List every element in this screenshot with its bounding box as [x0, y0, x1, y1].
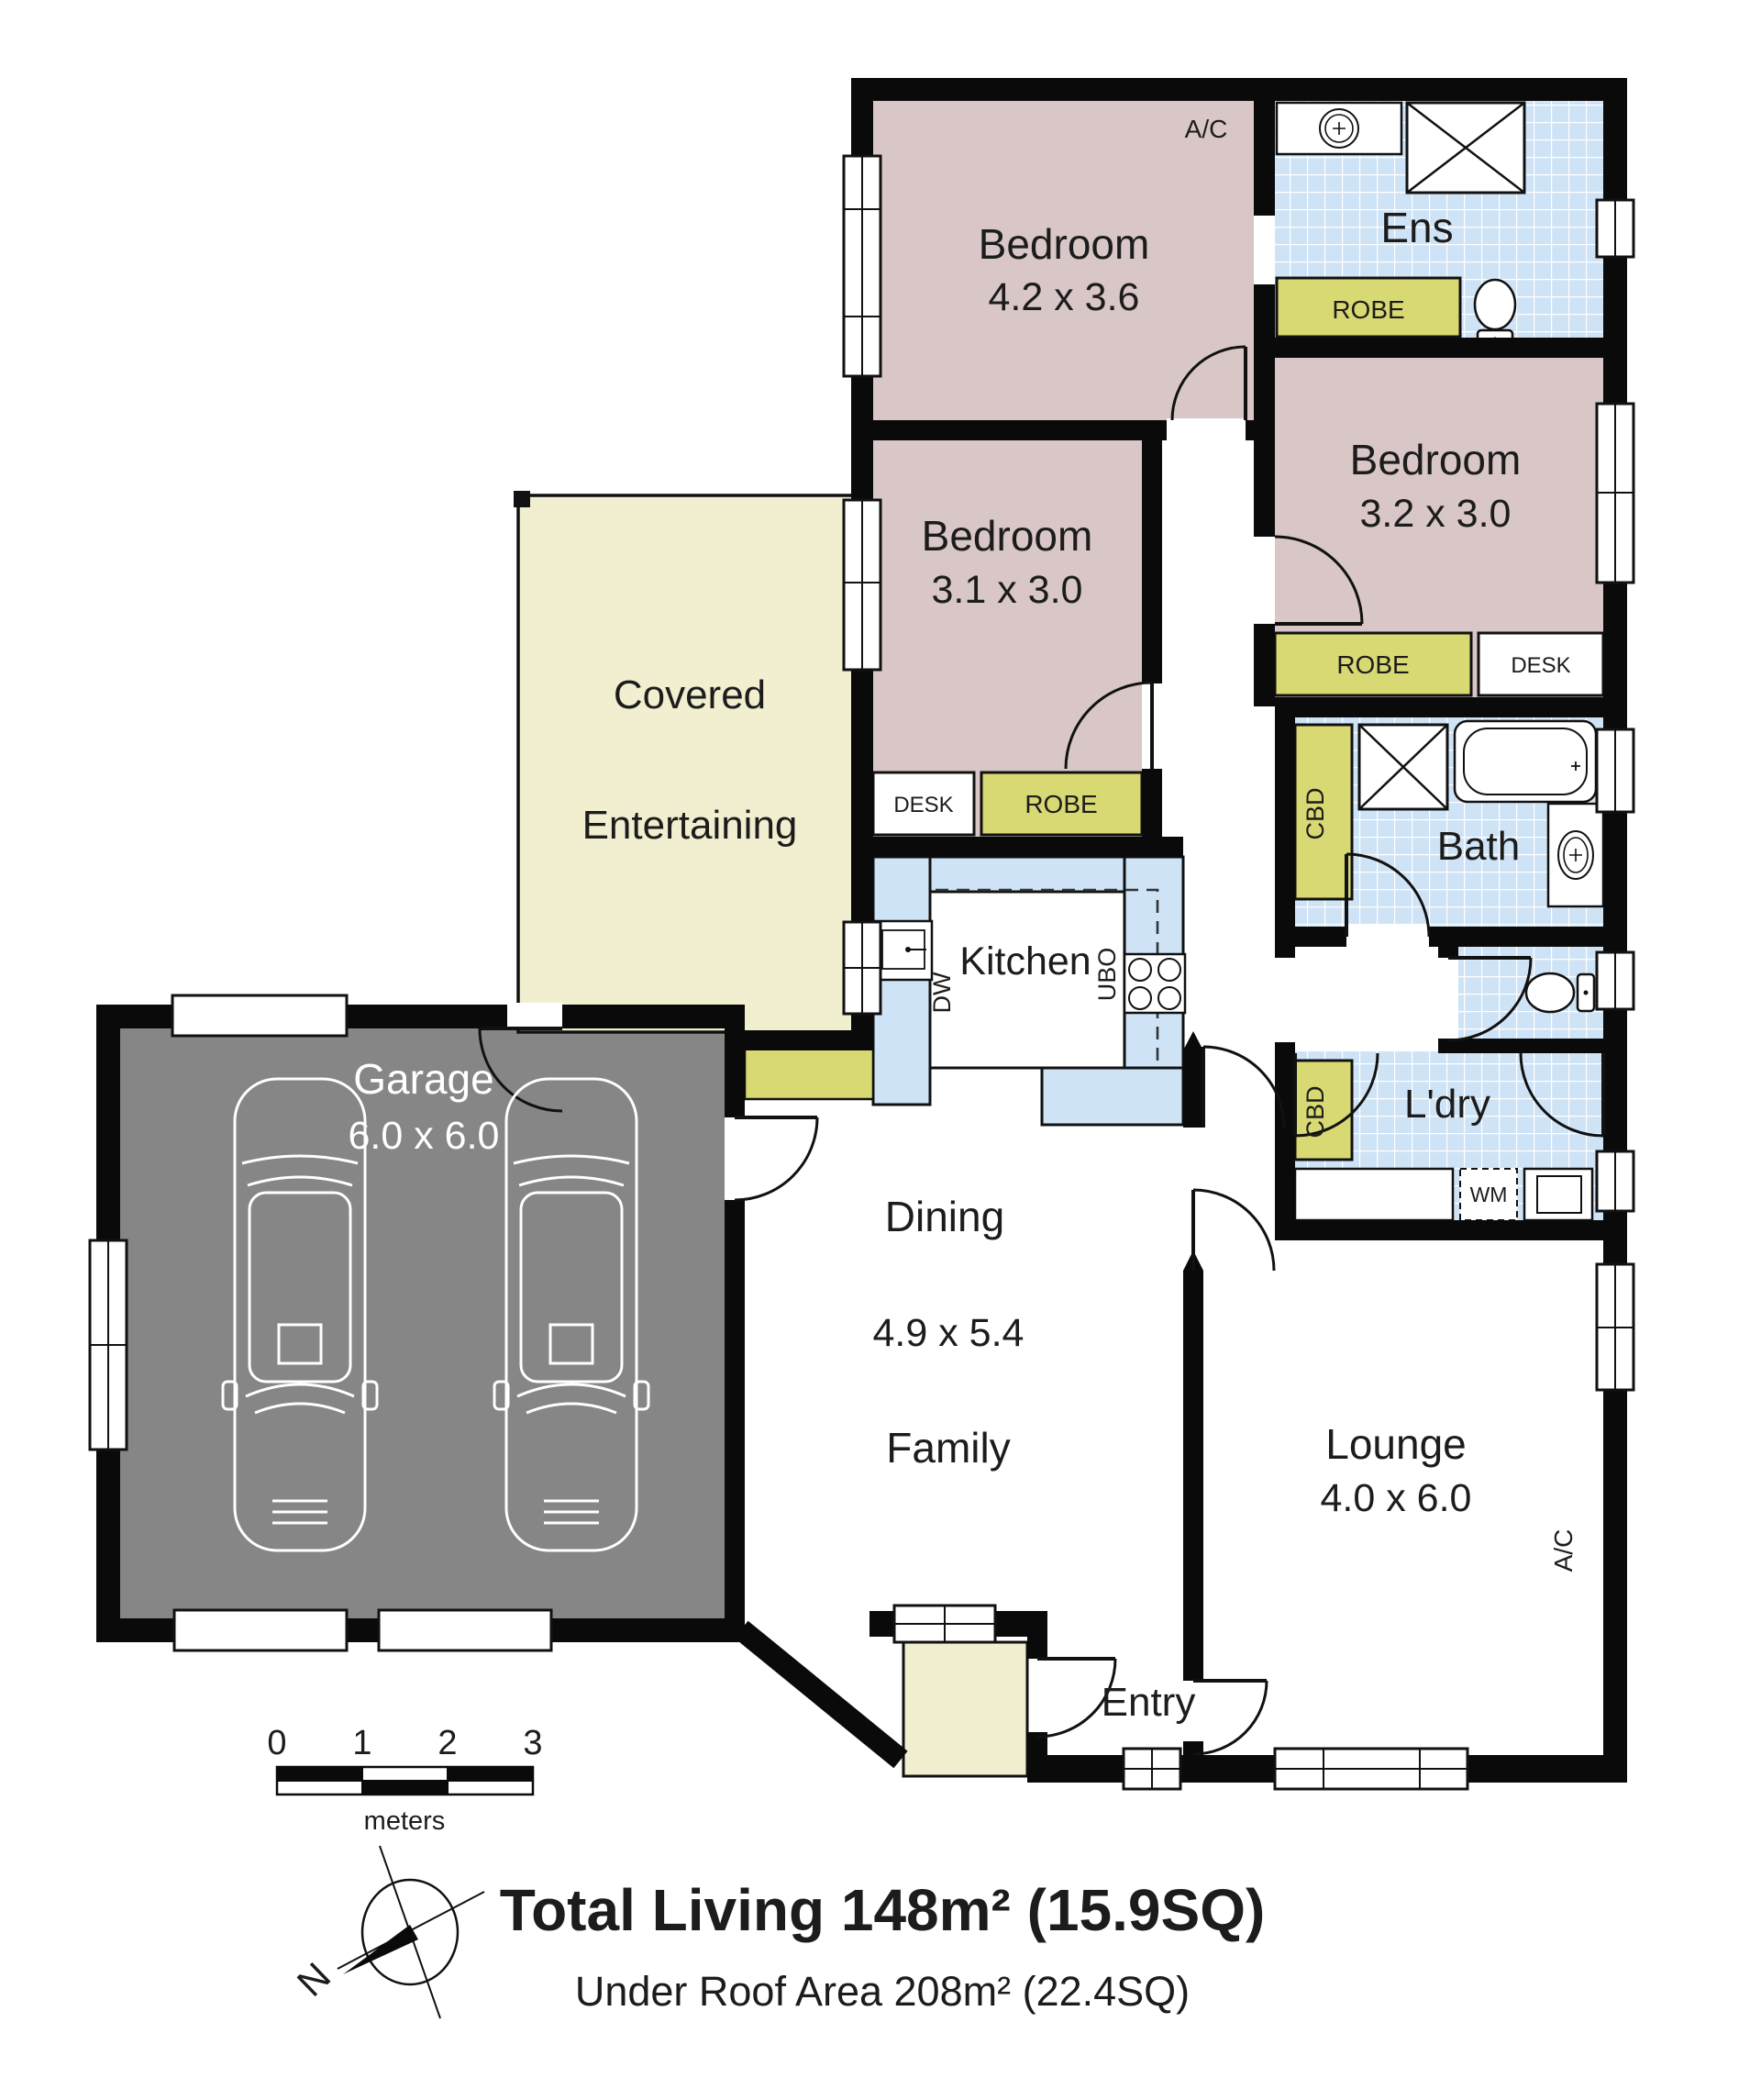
washing-machine-label: WM: [1470, 1183, 1508, 1206]
scale-tick-1: 1: [352, 1724, 371, 1762]
lounge-label: Lounge: [1325, 1420, 1467, 1468]
garage-door-panel-right: [379, 1610, 551, 1650]
wall-bath-bottom: [1275, 927, 1627, 947]
opening-bedroom2: [1254, 537, 1275, 624]
wall-under-ens: [1275, 338, 1627, 358]
wall-wc-bottom: [1438, 1039, 1603, 1053]
ubo-label: UBO: [1093, 948, 1121, 1002]
door-hall-family: [1203, 1047, 1284, 1128]
bathtub-icon: [1455, 721, 1596, 802]
opening-wc: [1438, 958, 1458, 1039]
wall-bath-left: [1275, 717, 1295, 947]
laundry-tub-icon: [1524, 1169, 1592, 1220]
door-entry-lounge: [1193, 1681, 1267, 1754]
laundry-cbd-label: CBD: [1301, 1085, 1329, 1138]
dining-label: Dining: [885, 1193, 1004, 1240]
opening-bath: [1346, 925, 1429, 949]
bath-vanity-icon: [1548, 804, 1603, 906]
scale-tick-3: 3: [523, 1724, 542, 1762]
cooktop-icon: [1124, 954, 1185, 1013]
under-roof-subtitle: Under Roof Area 208m² (22.4SQ): [575, 1968, 1190, 2015]
door-garage-dining: [735, 1117, 817, 1200]
window-lounge-bottom: [1275, 1749, 1467, 1789]
kitchen-label: Kitchen: [959, 939, 1091, 983]
wall-covered-dining: [745, 1030, 873, 1050]
bedroom1-label: Bedroom: [979, 220, 1150, 268]
wall-bed2-bottom: [1275, 697, 1627, 717]
laundry-label: L'dry: [1404, 1082, 1490, 1127]
wall-top: [851, 78, 1627, 101]
wall-bed3-right: [1142, 420, 1162, 857]
door-family-lounge: [1193, 1190, 1274, 1271]
window-laundry-right: [1597, 1151, 1634, 1211]
floor-plan-page: Bedroom 4.2 x 3.6 A/C Ens ROBE Bedroom 3…: [0, 0, 1761, 2100]
dining-dims: 4.9 x 5.4: [873, 1311, 1024, 1355]
window-bedroom1-left: [844, 156, 880, 376]
covered-entertaining-area: [518, 495, 862, 1032]
bedroom1-ac-label: A/C: [1185, 115, 1228, 143]
bath-shower-icon: [1359, 725, 1447, 809]
scale-unit-label: meters: [364, 1806, 446, 1836]
wall-front-door-upper: [1027, 1611, 1047, 1659]
wall-lounge-left: [1183, 1271, 1203, 1681]
laundry-bench: [1295, 1169, 1453, 1220]
garage-door-panel-left: [174, 1610, 347, 1650]
bath-label: Bath: [1437, 824, 1521, 869]
wall-kitchen-top: [851, 837, 1183, 857]
scale-tick-0: 0: [267, 1724, 286, 1762]
covered-corner-post: [514, 491, 530, 507]
wall-garage-right: [725, 1005, 745, 1642]
bedroom2-desk-label: DESK: [1511, 653, 1570, 678]
lounge-dims: 4.0 x 6.0: [1321, 1476, 1472, 1520]
bedroom3-label: Bedroom: [922, 512, 1093, 560]
ensuite-robe-label: ROBE: [1332, 295, 1404, 324]
scale-bar: 0 1 2 3 meters: [267, 1724, 542, 1836]
total-living-title: Total Living 148m² (15.9SQ): [500, 1877, 1266, 1943]
window-entry-bottom: [1124, 1749, 1180, 1789]
scale-tick-2: 2: [437, 1724, 457, 1762]
window-garage-left: [90, 1240, 127, 1450]
wall-laundry-bottom: [1275, 1220, 1627, 1240]
covered-label-line2: Entertaining: [582, 803, 798, 848]
compass-icon: N: [289, 1846, 484, 2018]
dishwasher-label: DW: [928, 972, 956, 1013]
opening-garage-covered: [507, 1003, 562, 1030]
dining-bench: [745, 1046, 873, 1099]
family-label: Family: [886, 1424, 1010, 1472]
wc-toilet-icon: [1526, 973, 1594, 1012]
entry-label: Entry: [1102, 1680, 1196, 1725]
ensuite-vanity-icon: [1277, 103, 1401, 154]
garage-dims: 6.0 x 6.0: [349, 1114, 500, 1158]
ensuite-label: Ens: [1380, 204, 1453, 251]
bedroom3-robe-label: ROBE: [1024, 790, 1097, 818]
opening-ensuite: [1254, 216, 1275, 284]
bath-cbd-label: CBD: [1301, 787, 1329, 839]
ensuite-shower-icon: [1407, 103, 1524, 193]
bedroom3-desk-label: DESK: [893, 793, 953, 817]
wall-diagonal: [741, 1629, 901, 1760]
bedroom2-dims: 3.2 x 3.0: [1360, 492, 1512, 536]
kitchen-peninsula: [1042, 1068, 1183, 1125]
window-bath-right: [1597, 729, 1634, 812]
wall-cap-hall: [1183, 1031, 1203, 1050]
window-bedroom2-right: [1597, 404, 1634, 583]
bedroom2-label: Bedroom: [1350, 436, 1522, 483]
window-kitchen-servery: [844, 922, 880, 1014]
opening-hall-nook: [1275, 958, 1295, 1042]
bedroom1-dims: 4.2 x 3.6: [989, 275, 1140, 319]
window-wc-right: [1597, 952, 1634, 1009]
wall-hall-stub: [1183, 1050, 1203, 1128]
lounge-ac-label: A/C: [1549, 1529, 1578, 1572]
wall-bed2-left: [1254, 358, 1275, 706]
garage-window-top: [172, 995, 347, 1036]
window-bedroom3-left: [844, 500, 880, 670]
bedroom2-robe-label: ROBE: [1336, 650, 1409, 679]
window-ensuite-right: [1597, 200, 1634, 257]
entry-porch: [903, 1642, 1027, 1776]
bedroom3-dims: 3.1 x 3.0: [932, 568, 1083, 612]
garage-floor: [108, 1017, 737, 1633]
opening-bedroom1: [1167, 418, 1246, 442]
window-family-south: [894, 1606, 995, 1642]
window-lounge-right: [1597, 1264, 1634, 1390]
compass-north-label: N: [289, 1954, 338, 2005]
compass-needle: [343, 1925, 418, 1974]
garage-label: Garage: [353, 1055, 493, 1103]
covered-label-line1: Covered: [614, 672, 766, 717]
floor-plan-canvas: Bedroom 4.2 x 3.6 A/C Ens ROBE Bedroom 3…: [0, 0, 1761, 2100]
kitchen-sink-icon: [875, 921, 932, 980]
opening-garage-dining: [725, 1117, 745, 1200]
